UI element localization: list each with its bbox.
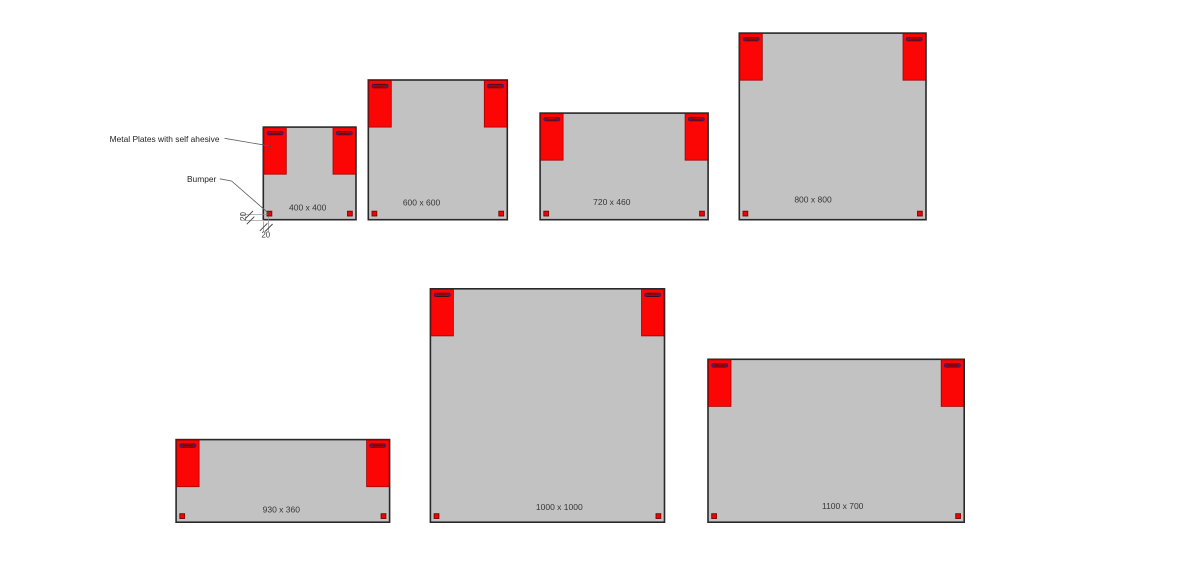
svg-text:1100 x 700: 1100 x 700	[822, 501, 864, 511]
svg-text:1000 x 1000: 1000 x 1000	[536, 502, 583, 512]
svg-text:400 x 400: 400 x 400	[289, 202, 327, 212]
svg-text:800 x 800: 800 x 800	[794, 195, 832, 205]
svg-text:720 x 460: 720 x 460	[593, 197, 631, 207]
svg-text:Metal Plates with self ahesive: Metal Plates with self ahesive	[110, 134, 220, 144]
svg-text:Bumper: Bumper	[187, 174, 217, 184]
svg-text:930 x 360: 930 x 360	[263, 504, 301, 514]
svg-text:20: 20	[261, 231, 270, 240]
svg-text:600 x 600: 600 x 600	[403, 198, 441, 208]
svg-text:20: 20	[239, 211, 248, 220]
